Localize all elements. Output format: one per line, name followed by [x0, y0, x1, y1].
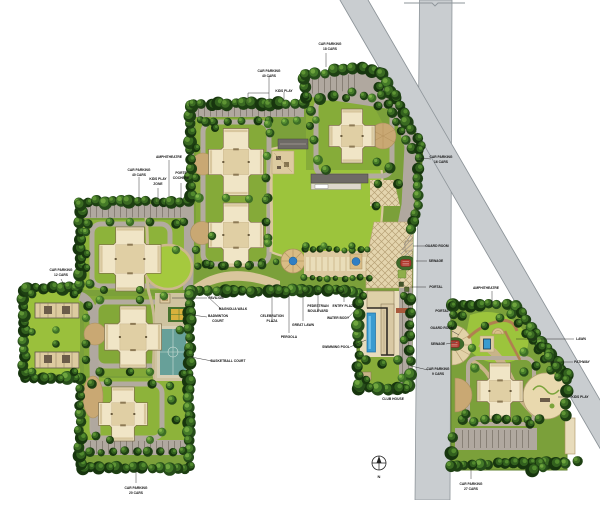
svg-text:CLUB HOUSE: CLUB HOUSE: [382, 397, 405, 401]
svg-text:CAR PARKING: CAR PARKING: [124, 486, 147, 490]
svg-text:PEDESTRIAN: PEDESTRIAN: [307, 304, 329, 308]
svg-text:BOULEVARD: BOULEVARD: [308, 309, 329, 313]
svg-text:PATHWAY: PATHWAY: [574, 360, 590, 364]
svg-text:40 CARS: 40 CARS: [262, 74, 277, 78]
svg-text:PORTAL: PORTAL: [435, 309, 448, 313]
svg-text:27 CARS: 27 CARS: [464, 487, 479, 491]
svg-text:SWIMMING POOL: SWIMMING POOL: [322, 345, 350, 349]
svg-text:CAR PARKING: CAR PARKING: [49, 268, 72, 272]
svg-text:CAR PARKING: CAR PARKING: [459, 482, 482, 486]
svg-text:COURT: COURT: [212, 319, 224, 323]
svg-text:GUARD ROOM: GUARD ROOM: [425, 244, 449, 248]
svg-text:PORTE: PORTE: [175, 171, 187, 175]
svg-text:CAR PARKING: CAR PARKING: [127, 168, 150, 172]
svg-text:PERGOLA: PERGOLA: [281, 335, 298, 339]
svg-text:KIDS PLAY: KIDS PLAY: [275, 89, 293, 93]
svg-text:18 CARS: 18 CARS: [323, 47, 338, 51]
svg-text:BASKETBALL COURT: BASKETBALL COURT: [211, 359, 246, 363]
svg-text:CAR PARKING: CAR PARKING: [429, 155, 452, 159]
svg-text:N: N: [378, 474, 381, 479]
svg-text:40 CARS: 40 CARS: [132, 173, 147, 177]
svg-text:WATER BODY: WATER BODY: [327, 316, 350, 320]
svg-text:KIDS PLAY: KIDS PLAY: [571, 395, 589, 399]
svg-text:KIDS PLAY: KIDS PLAY: [149, 177, 167, 181]
svg-text:PLAZA: PLAZA: [267, 319, 279, 323]
svg-text:AMPHITHEATRE: AMPHITHEATRE: [156, 155, 183, 159]
svg-text:SEWAGE: SEWAGE: [431, 342, 446, 346]
svg-text:PORTAL: PORTAL: [429, 285, 442, 289]
svg-text:MAGNOLIA WALK: MAGNOLIA WALK: [219, 307, 248, 311]
svg-text:CELEBRATION: CELEBRATION: [260, 314, 284, 318]
svg-text:AMPHITHEATRE: AMPHITHEATRE: [473, 286, 500, 290]
svg-text:LAWN: LAWN: [576, 337, 586, 341]
svg-text:COCHERE: COCHERE: [173, 176, 190, 180]
svg-text:SEWAGE: SEWAGE: [429, 259, 444, 263]
svg-text:BADMINTON: BADMINTON: [208, 314, 229, 318]
svg-text:CAR PARKING: CAR PARKING: [318, 42, 341, 46]
svg-text:GUARD ROOM: GUARD ROOM: [430, 326, 454, 330]
svg-text:CAR PARKING: CAR PARKING: [426, 367, 449, 371]
svg-text:9 CARS: 9 CARS: [432, 372, 445, 376]
svg-text:ZONE: ZONE: [153, 182, 163, 186]
svg-text:GREAT LAWN: GREAT LAWN: [292, 323, 315, 327]
svg-text:12 CARS: 12 CARS: [54, 273, 69, 277]
svg-text:16 CARS: 16 CARS: [434, 160, 449, 164]
svg-text:CAR PARKING: CAR PARKING: [257, 69, 280, 73]
svg-text:ENTRY PLAZA: ENTRY PLAZA: [333, 304, 357, 308]
svg-text:20 CARS: 20 CARS: [129, 491, 144, 495]
